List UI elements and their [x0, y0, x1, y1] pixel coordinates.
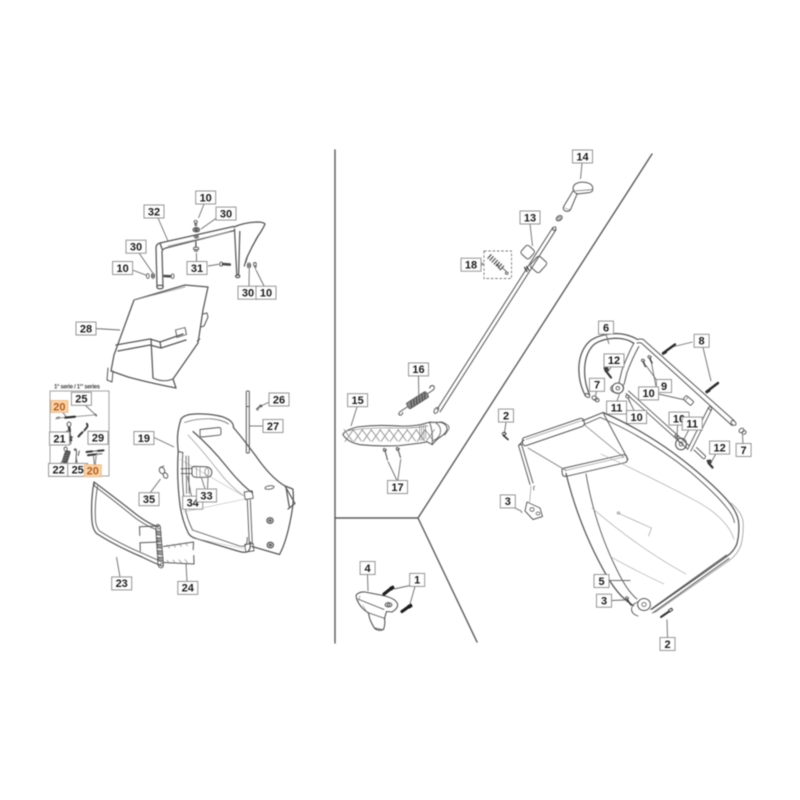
svg-text:25: 25 — [75, 394, 87, 406]
svg-text:12: 12 — [608, 355, 620, 367]
svg-text:10: 10 — [116, 263, 128, 275]
svg-text:33: 33 — [200, 490, 212, 502]
svg-text:29: 29 — [92, 433, 104, 445]
svg-text:17: 17 — [391, 482, 403, 494]
svg-text:22: 22 — [52, 465, 64, 477]
svg-text:35: 35 — [143, 494, 155, 506]
svg-text:20: 20 — [87, 466, 99, 478]
svg-text:14: 14 — [576, 151, 589, 163]
svg-text:3: 3 — [505, 496, 511, 508]
svg-text:1: 1 — [414, 575, 420, 587]
svg-text:9: 9 — [661, 381, 667, 393]
svg-text:30: 30 — [130, 242, 142, 254]
svg-text:25: 25 — [72, 465, 84, 477]
svg-text:18: 18 — [465, 260, 477, 272]
svg-text:2: 2 — [664, 639, 670, 651]
svg-text:19: 19 — [138, 433, 150, 445]
svg-text:1° serie / 1°' series: 1° serie / 1°' series — [54, 385, 101, 391]
svg-text:23: 23 — [116, 578, 128, 590]
svg-text:21: 21 — [53, 433, 65, 445]
svg-text:10: 10 — [200, 192, 212, 204]
svg-text:11: 11 — [686, 418, 698, 430]
svg-text:30: 30 — [220, 208, 232, 220]
svg-text:10: 10 — [260, 288, 272, 300]
svg-text:6: 6 — [603, 322, 609, 334]
svg-text:8: 8 — [699, 336, 705, 348]
svg-text:16: 16 — [412, 364, 424, 376]
svg-text:26: 26 — [273, 394, 285, 406]
svg-text:30: 30 — [242, 288, 254, 300]
svg-text:7: 7 — [594, 380, 600, 392]
svg-text:5: 5 — [598, 576, 604, 588]
svg-text:11: 11 — [611, 402, 623, 414]
svg-text:10: 10 — [642, 388, 654, 400]
svg-text:12: 12 — [713, 442, 725, 454]
svg-text:4: 4 — [365, 563, 372, 575]
svg-text:15: 15 — [351, 395, 363, 407]
svg-text:2: 2 — [503, 410, 509, 422]
svg-text:31: 31 — [191, 263, 203, 275]
svg-text:27: 27 — [267, 421, 279, 433]
svg-text:32: 32 — [148, 206, 160, 218]
svg-text:10: 10 — [630, 412, 642, 424]
svg-text:7: 7 — [741, 445, 747, 457]
svg-text:20: 20 — [53, 401, 65, 413]
svg-text:28: 28 — [80, 323, 92, 335]
svg-text:3: 3 — [601, 596, 607, 608]
svg-text:24: 24 — [182, 583, 195, 595]
svg-text:13: 13 — [524, 212, 536, 224]
